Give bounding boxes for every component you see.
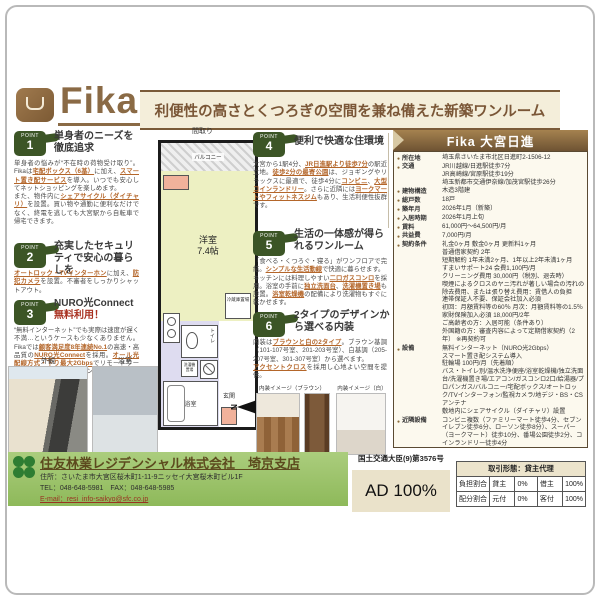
property-row: ● 築年月 2026年1月（新築） xyxy=(395,205,586,213)
exterior-photo xyxy=(8,366,88,455)
property-row-label: 築年月 xyxy=(402,205,442,213)
floorplan: バルコニー 洋室7.4帖 冷蔵庫置場 トイレ 洗濯機置場 浴室 玄関 xyxy=(154,136,258,428)
floorplan-washer-space: 洗濯機置場 xyxy=(181,360,198,377)
fika-logo-text: Fika xyxy=(58,82,146,126)
bullet-icon: ● xyxy=(395,241,402,249)
property-row-label: 賃料 xyxy=(402,223,442,231)
property-row-value: 木造3階建 xyxy=(442,187,586,195)
property-row: ● 共益費 7,000円/月 xyxy=(395,232,586,240)
north-label: N xyxy=(229,404,239,410)
point-3-icon: POINT3 xyxy=(14,300,46,325)
bullet-icon: ● xyxy=(395,163,402,171)
property-table: ● 所在地 埼玉県さいたま市北区日進町2-1506-12 ● 交通 JR川越線/… xyxy=(393,151,588,448)
point-5-title: 生活の一体感が得られるワンルーム xyxy=(294,229,390,253)
interior-brown-photo xyxy=(256,393,300,455)
license-number: 国土交通大臣(9)第3576号 xyxy=(358,453,444,464)
point-5-body: 「食べる・くつろぐ・寝る」がワンフロアで完結。シンプルな生活動線で快適に暮らせま… xyxy=(253,258,387,308)
bullet-icon: ● xyxy=(395,223,402,231)
deal-cell: 配分割合 xyxy=(457,492,490,507)
floorplan-walls: バルコニー 洋室7.4帖 冷蔵庫置場 トイレ 洗濯機置場 浴室 玄関 xyxy=(158,140,258,430)
ad-ratio-badge: AD 100% xyxy=(352,470,450,512)
point-3-title-accent: 無料利用！ xyxy=(54,310,104,321)
point-5-icon: POINT5 xyxy=(253,231,285,256)
table-row: 負担割合 貸主 0% 借主 100% xyxy=(457,477,586,492)
exterior-photo-label: 外観 xyxy=(8,356,88,366)
deal-type-header: 取引形態：貸主代理 xyxy=(457,462,586,477)
point-6-body: 内装はブラウンと白の2タイプ。ブラウン基調（101-107号室、201-203号… xyxy=(253,339,387,380)
point-4-title: 便利で快適な住環境 xyxy=(294,136,390,148)
point-4-body: 大宮から1駅4分、JR日進駅より徒歩7分の駅近立地。徒歩2分の最寄公園は、ジョギ… xyxy=(253,161,387,211)
deal-cell: 元付 xyxy=(490,492,515,507)
floorplan-stove xyxy=(163,313,180,343)
company-address: 住所：さいたま市大宮区桜木町1-11-9ニッセイ大宮桜木町ビル1F xyxy=(40,472,243,482)
deal-cell: 0% xyxy=(515,492,537,507)
property-title-bar: Fika 大宮日進 xyxy=(393,130,588,151)
tagline-text: 利便性の高さとくつろぎの空間を兼ね備えた新築ワンルーム xyxy=(155,100,546,121)
point-1-body: 単身者の悩みが“不在時の荷物受け取り”。Fikaは宅配ボックス（6基）に加え、ス… xyxy=(14,160,139,226)
property-row: ● 入居時期 2026年1月上旬 xyxy=(395,214,586,222)
interior-white-caption: 内装イメージ（白） xyxy=(336,384,388,392)
property-row-label: 所在地 xyxy=(402,154,442,162)
property-row-value: 2026年1月（新築） xyxy=(442,205,586,213)
company-name: 住友林業レジデンシャル株式会社 埼京支店 xyxy=(40,453,300,472)
property-row: ● 建物構造 木造3階建 xyxy=(395,187,586,195)
table-row: 配分割合 元付 0% 客付 100% xyxy=(457,492,586,507)
bullet-icon: ● xyxy=(395,154,402,162)
floorplan-toilet: トイレ xyxy=(181,325,218,358)
point-1-icon: POINT1 xyxy=(14,131,46,156)
interior-white-photo xyxy=(336,393,386,455)
property-row-label: 入居時期 xyxy=(402,214,442,222)
coffee-cup-icon xyxy=(26,97,44,110)
property-row-label: 契約条件 xyxy=(402,241,442,249)
property-row-value: 7,000円/月 xyxy=(442,232,586,240)
floorplan-entrance-label: 玄関 xyxy=(223,391,235,400)
deal-cell: 負担割合 xyxy=(457,477,490,492)
toilet-icon xyxy=(186,332,198,349)
property-row-label: 交通 xyxy=(402,163,442,171)
deal-cell: 0% xyxy=(515,477,537,492)
bullet-icon: ● xyxy=(395,205,402,213)
property-row-value: 無料インターネット（NURO光2Gbps） スマート置き配システム導入 駐輪場 … xyxy=(442,345,586,416)
company-email[interactable]: E-mail：resi_info-saikyo@sfc.co.jp xyxy=(40,494,148,504)
washbasin-icon xyxy=(203,363,215,375)
property-row: ● 所在地 埼玉県さいたま市北区日進町2-1506-12 xyxy=(395,154,586,162)
sumitomo-forestry-logo xyxy=(13,456,35,478)
point-1-title: 単身者のニーズを徹底追求 xyxy=(54,131,138,155)
deal-cell: 客付 xyxy=(537,492,562,507)
property-row-value: 礼金0ヶ月 敷金0ヶ月 更新料1ヶ月 普通借家契約 2年 短期解約 1年未満2ヶ… xyxy=(442,241,586,344)
floorplan-kitchen-counter xyxy=(163,175,189,190)
column-divider xyxy=(388,133,389,228)
property-row: ● 総戸数 18戸 xyxy=(395,196,586,204)
north-arrow-icon xyxy=(237,400,257,414)
bullet-icon: ● xyxy=(395,232,402,240)
point-3-title: NURO光Connect無料利用！ xyxy=(54,298,140,322)
deal-cell: 借主 xyxy=(537,477,562,492)
property-row-value: 18戸 xyxy=(442,196,586,204)
property-row-value: 2026年1月上旬 xyxy=(442,214,586,222)
property-row-value: 埼玉県さいたま市北区日進町2-1506-12 xyxy=(442,154,586,162)
bullet-icon: ● xyxy=(395,196,402,204)
property-row: ● 設備 無料インターネット（NURO光2Gbps） スマート置き配システム導入… xyxy=(395,345,586,416)
fika-logo-icon xyxy=(16,88,54,122)
deal-type-table: 取引形態：貸主代理 負担割合 貸主 0% 借主 100% 配分割合 元付 0% … xyxy=(456,461,586,507)
floorplan-balcony: バルコニー xyxy=(161,143,255,173)
point-6-icon: POINT6 xyxy=(253,312,285,337)
property-row-value: 61,000円～64,500円/月 xyxy=(442,223,586,231)
point-2-body: オートロック・TVインターホンに加え、防犯カメラを設置。不審者をしっかりシャット… xyxy=(14,270,139,295)
property-row-label: 共益費 xyxy=(402,232,442,240)
property-row-value: コンビニ複数（ファミリーマート徒歩4分、セブンイレブン徒歩6分、ローソン徒歩8分… xyxy=(442,417,586,449)
deal-cell: 100% xyxy=(563,492,586,507)
bathroom-photo xyxy=(92,366,158,455)
property-row: ● 近隣設備 コンビニ複数（ファミリーマート徒歩4分、セブンイレブン徒歩6分、ロ… xyxy=(395,417,586,449)
bullet-icon: ● xyxy=(395,214,402,222)
point-4-icon: POINT4 xyxy=(253,132,285,157)
property-row: ● 交通 JR川越線/日進駅徒歩7分 JR高崎線/宮原駅徒歩19分 埼玉新都市交… xyxy=(395,163,586,187)
property-title: Fika 大宮日進 xyxy=(447,131,535,150)
property-row-label: 総戸数 xyxy=(402,196,442,204)
property-row-label: 建物構造 xyxy=(402,187,442,195)
property-row-label: 設備 xyxy=(402,345,442,353)
bathtub-icon xyxy=(167,385,185,422)
point-2-icon: POINT2 xyxy=(14,243,46,268)
bath-photo-label: 浴室 xyxy=(92,356,158,366)
point-6-title: 2タイプのデザインから選べる内装 xyxy=(294,310,390,334)
north-compass: N xyxy=(231,400,257,414)
floorplan-washbasin xyxy=(200,360,218,379)
tagline-banner: 利便性の高さとくつろぎの空間を兼ね備えた新築ワンルーム xyxy=(140,90,560,130)
floorplan-fridge-space: 冷蔵庫置場 xyxy=(225,293,251,319)
property-row-label: 近隣設備 xyxy=(402,417,442,425)
floorplan-label: 間取り xyxy=(192,126,213,136)
floorplan-bathroom: 浴室 xyxy=(163,381,218,426)
property-row: ● 賃料 61,000円～64,500円/月 xyxy=(395,223,586,231)
bullet-icon: ● xyxy=(395,345,402,353)
interior-brown-caption: 内装イメージ（ブラウン） xyxy=(252,384,332,392)
brown-door-photo xyxy=(304,393,330,457)
bullet-icon: ● xyxy=(395,417,402,425)
company-tel-fax: TEL：048-648-5981 FAX：048-648-5985 xyxy=(40,483,174,493)
deal-cell: 100% xyxy=(563,477,586,492)
property-row-value: JR川越線/日進駅徒歩7分 JR高崎線/宮原駅徒歩19分 埼玉新都市交通伊奈線/… xyxy=(442,163,586,187)
bullet-icon: ● xyxy=(395,187,402,195)
deal-cell: 貸主 xyxy=(490,477,515,492)
property-row: ● 契約条件 礼金0ヶ月 敷金0ヶ月 更新料1ヶ月 普通借家契約 2年 短期解約… xyxy=(395,241,586,344)
